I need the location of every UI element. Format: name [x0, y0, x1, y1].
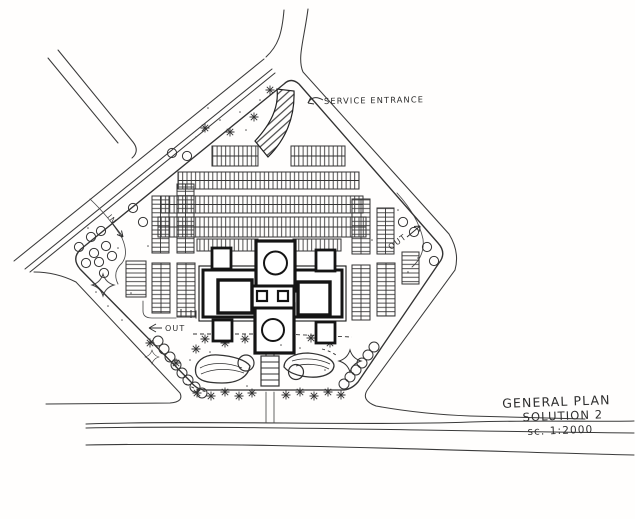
plan-title-line3: sc. 1:2000 [527, 424, 593, 438]
perimeter-road-outer [301, 9, 585, 419]
building-north-dome [264, 252, 287, 275]
tree-icon [182, 151, 191, 160]
palm-icon [207, 392, 216, 401]
pond-right [284, 353, 334, 380]
palm-icon [282, 391, 291, 400]
building-pavilion [212, 248, 231, 269]
north-road-left-line [266, 10, 284, 57]
palm-icon [192, 345, 201, 354]
building-core-square [278, 291, 288, 301]
palm-icon [241, 335, 250, 344]
building-complex [199, 241, 346, 353]
tree-icon [138, 217, 147, 226]
palm-icon [266, 86, 275, 95]
out-left-arrow [149, 324, 162, 332]
side-road-line [58, 50, 136, 158]
pond-left [196, 355, 254, 383]
tree-icon [96, 226, 105, 235]
tree-icon [398, 217, 407, 226]
highway-line [86, 444, 634, 455]
tree-icon [89, 248, 98, 257]
service-ramp [255, 89, 294, 157]
palm-icon [310, 392, 319, 401]
tree-icon [94, 257, 103, 266]
service-entrance-label: SERVICE ENTRANCE [324, 94, 424, 106]
site-plan-drawing: SERVICE ENTRANCE OUT OUT IN GENERAL PLAN… [0, 0, 635, 519]
palm-icon [201, 124, 210, 133]
building-west-hall [218, 280, 252, 313]
parking-column [126, 261, 146, 297]
in-label: IN [105, 213, 118, 226]
palm-icon [201, 335, 210, 344]
building-pavilion [316, 250, 335, 271]
palm-icon [250, 113, 259, 122]
palm-icon [226, 128, 235, 137]
building-south-dome [262, 319, 284, 341]
star-plant-icon [145, 350, 159, 364]
site-plan-page: SERVICE ENTRANCE OUT OUT IN GENERAL PLAN… [0, 0, 635, 519]
tree-icon [422, 242, 431, 251]
parking-column [402, 252, 419, 284]
out-left-label: OUT [165, 324, 185, 333]
palm-icon [337, 391, 346, 400]
palm-icon [221, 388, 230, 397]
palm-icon [324, 388, 333, 397]
tree-icon [128, 203, 137, 212]
palm-icon [307, 334, 316, 343]
building-east-hall [298, 282, 330, 315]
in-arrow [113, 224, 123, 237]
building-pavilion [213, 320, 232, 341]
side-road-line [48, 58, 118, 143]
plan-title-line2: SOLUTION 2 [522, 407, 603, 424]
tree-icon [81, 258, 90, 267]
tree-chain-left [153, 336, 207, 398]
building-core-square [257, 291, 267, 301]
tree-icon [429, 256, 438, 265]
garden-bridge [261, 352, 279, 386]
building-pavilion [316, 322, 335, 343]
palm-icon [235, 392, 244, 401]
palm-icon [296, 388, 305, 397]
palm-icon [248, 389, 257, 398]
tree-icon [107, 251, 116, 260]
tree-icon [101, 241, 110, 250]
